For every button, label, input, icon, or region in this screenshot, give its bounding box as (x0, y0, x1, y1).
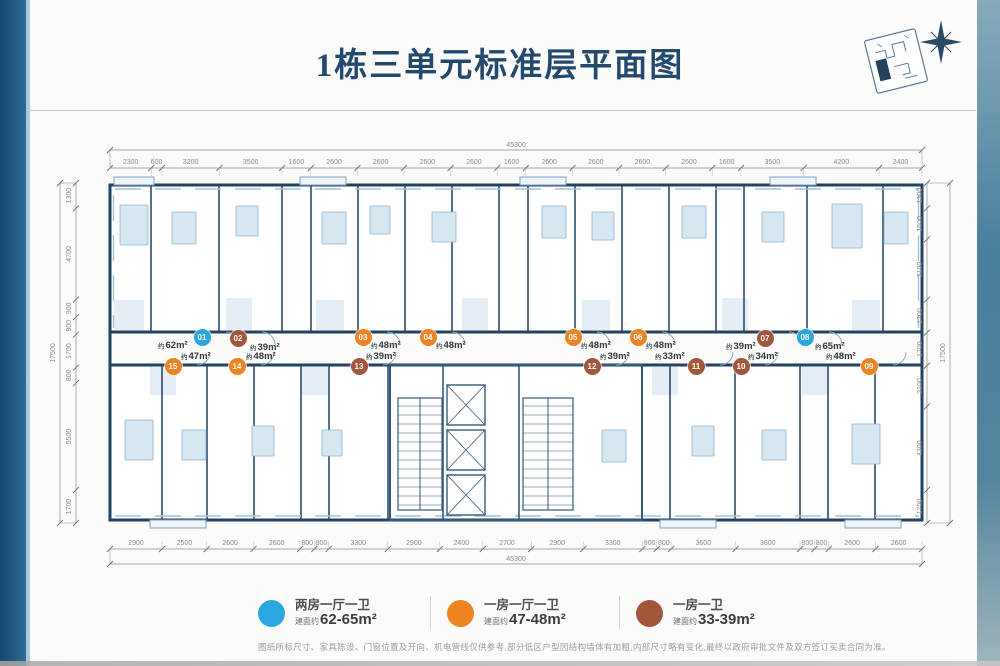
dim-label: 2600 (466, 159, 482, 166)
legend-label: 一房一厅一卫 (484, 598, 566, 612)
dim-label: 2400 (893, 159, 909, 166)
dim-label: 800 (66, 369, 73, 381)
dim-label: 2700 (499, 540, 515, 547)
legend-item-one-bed: 一房一卫 建面约33-39m² (620, 598, 808, 629)
dim-label: 3300 (350, 540, 366, 547)
dim-label: 2100 (917, 378, 924, 394)
dim-label: 2900 (406, 540, 422, 547)
legend-label: 两房一厅一卫 (295, 598, 377, 612)
dim-label: 2600 (541, 159, 557, 166)
dim-label: 2600 (844, 540, 860, 547)
dim-label: 1700 (917, 499, 924, 515)
door-arcs (197, 332, 906, 365)
dim-label: 1700 (66, 499, 73, 515)
legend-area: 建面约62-65m² (295, 612, 377, 629)
dim-label: 1300 (917, 188, 924, 204)
dim-label: 2600 (222, 540, 238, 547)
dim-label: 3500 (243, 159, 259, 166)
dim-label: 2600 (373, 159, 389, 166)
dim-label: 2600 (891, 540, 907, 547)
dim-label: 800 (801, 540, 813, 547)
dim-label: 1600 (504, 159, 520, 166)
dim-label: 1600 (289, 159, 305, 166)
dim-label: 2900 (128, 540, 144, 547)
dim-label: 4200 (834, 159, 850, 166)
dim-label: 900 (66, 302, 73, 314)
dim-label: 3300 (605, 540, 621, 547)
dim-label: 800 (658, 540, 670, 547)
legend-brown-dot-icon (636, 600, 663, 627)
dim-label: 2600 (681, 159, 697, 166)
legend-label: 一房一卫 (673, 598, 755, 612)
unit-type-legend: 两房一厅一卫 建面约62-65m² 一房一厅一卫 建面约47-48m² 一房一卫… (258, 596, 808, 630)
dim-label: 3500 (765, 159, 781, 166)
legend-area: 建面约47-48m² (484, 612, 566, 629)
dim-label: 800 (316, 540, 328, 547)
legend-blue-dot-icon (258, 600, 285, 627)
floor-plan-drawing: 2300600320035001600260026002600260016002… (0, 0, 1000, 666)
dim-label: 900 (66, 320, 73, 332)
dim-label: 5500 (66, 429, 73, 445)
dim-label: 2900 (549, 540, 565, 547)
dim-label: 2400 (454, 540, 470, 547)
dim-label: 3600 (760, 540, 776, 547)
dim-label: 2300 (123, 159, 139, 166)
dim-label: 1700 (66, 343, 73, 359)
legend-orange-dot-icon (447, 600, 474, 627)
dim-label: 17500 (50, 343, 57, 363)
dim-label: 1700 (917, 308, 924, 324)
dim-label: 3100 (917, 262, 924, 278)
dim-label: 45300 (506, 142, 526, 149)
legend-area: 建面约33-39m² (673, 612, 755, 629)
disclaimer-text: 图纸所标尺寸、家具陈设、门窗位置及开向、机电管线仅供参考,部分低区户型因结构墙体… (258, 641, 891, 653)
dim-label: 1700 (917, 341, 924, 357)
dim-label: 800 (301, 540, 313, 547)
dim-label: 45300 (506, 556, 526, 563)
dim-label: 2600 (635, 159, 651, 166)
dim-label: 4700 (66, 246, 73, 262)
dim-label: 1300 (66, 188, 73, 204)
dim-label: 2600 (588, 159, 604, 166)
dim-label: 2600 (419, 159, 435, 166)
dim-label: 1600 (917, 216, 924, 232)
dim-label: 4300 (917, 440, 924, 456)
dim-label: 2500 (177, 540, 193, 547)
dim-label: 2600 (269, 540, 285, 547)
dim-label: 17500 (940, 343, 947, 363)
legend-item-two-bed: 两房一厅一卫 建面约62-65m² (258, 598, 430, 629)
dim-label: 3200 (183, 159, 199, 166)
dim-label: 3600 (696, 540, 712, 547)
dim-label: 800 (644, 540, 656, 547)
dim-label: 600 (151, 159, 163, 166)
dim-label: 2600 (326, 159, 342, 166)
dim-label: 800 (816, 540, 828, 547)
legend-item-one-bed-living: 一房一厅一卫 建面约47-48m² (431, 598, 619, 629)
dim-label: 1600 (719, 159, 735, 166)
